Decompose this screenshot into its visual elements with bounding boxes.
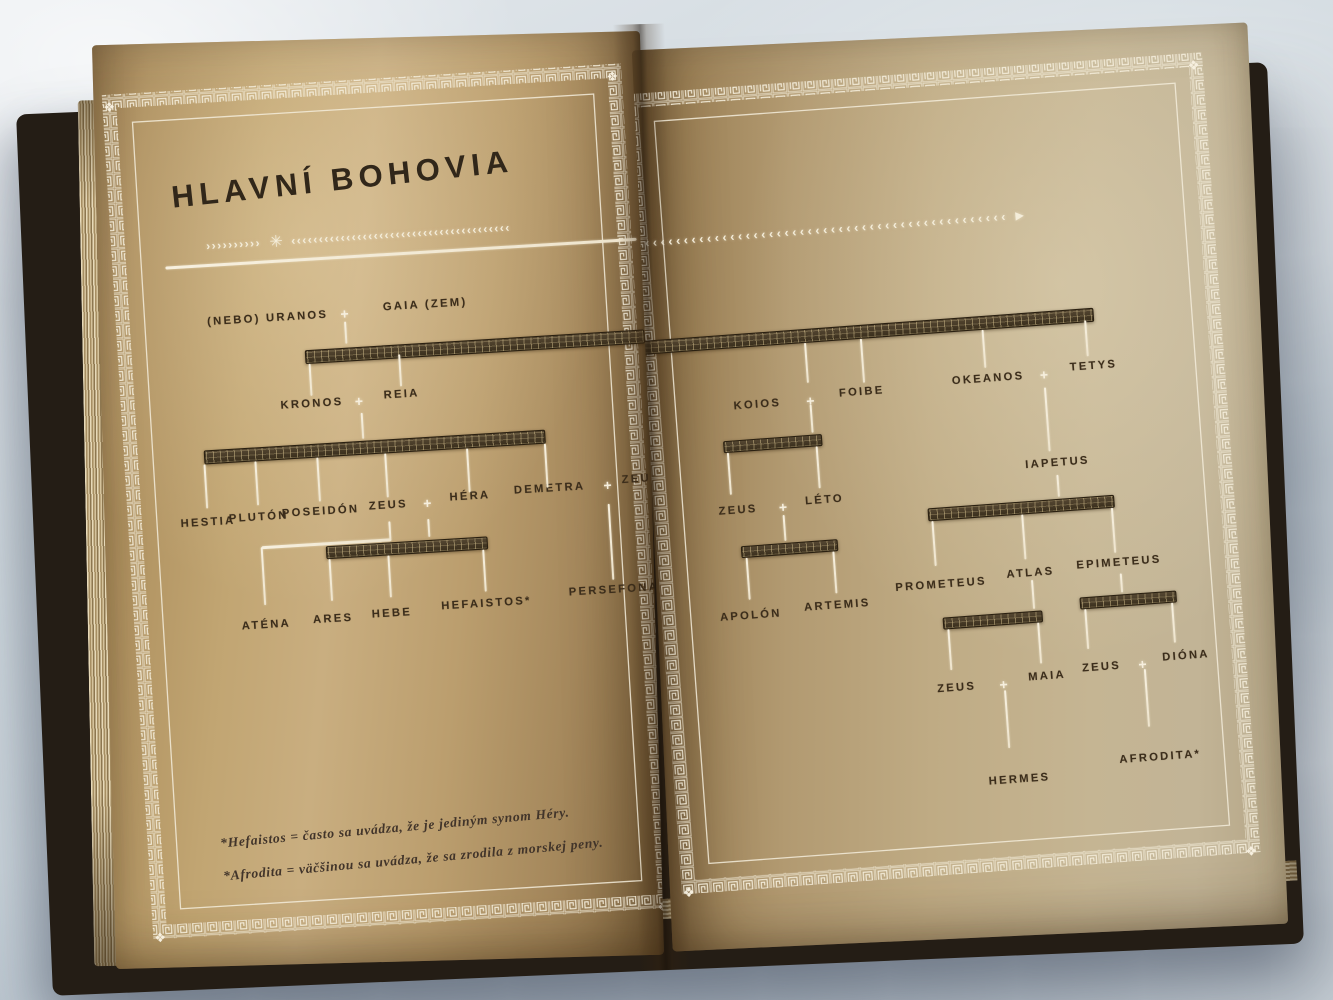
left-page: ❖ ❖ ❖ ❖ HLAVNÍ BOHOVIA ›››››››››› ✳ ‹‹‹‹… — [92, 31, 664, 969]
descent-bar — [634, 308, 1094, 356]
connector-line — [1037, 623, 1043, 664]
node-iapetus: IAPETUS — [1025, 454, 1090, 471]
descent-bar — [943, 610, 1044, 629]
connector-line — [1021, 514, 1027, 559]
node-zeus: ZEUS — [937, 680, 977, 695]
node-okeanos: OKEANOS — [951, 370, 1024, 387]
connector-line — [360, 413, 364, 439]
connector-line — [1004, 690, 1011, 748]
node-poseidon: POSEIDÓN — [282, 503, 360, 520]
descent-bar — [204, 430, 546, 465]
connector-line — [1056, 475, 1060, 497]
connector-line — [544, 444, 549, 488]
union-plus: + — [423, 495, 432, 511]
connector-line — [1144, 669, 1151, 727]
connector-line — [947, 629, 953, 670]
page-title: HLAVNÍ BOHOVIA — [170, 143, 515, 215]
connector-line — [809, 405, 814, 433]
node-persefona: PERSEFONA — [568, 581, 659, 598]
connector-line — [344, 322, 348, 344]
union-plus: + — [603, 477, 612, 493]
union-plus: + — [354, 393, 363, 409]
connector-line — [607, 504, 614, 580]
connector-line — [981, 330, 986, 368]
connector-line — [1084, 320, 1089, 356]
connector-line — [815, 446, 821, 488]
chevrons-right-icon: ›››››››››› — [206, 236, 262, 253]
node-hebe: HEBE — [371, 606, 412, 620]
connector-line — [388, 521, 392, 539]
connector-line — [1031, 580, 1036, 609]
node-reia: REIA — [383, 387, 420, 401]
footnotes: *Hefaistos = často sa uvádza, že je jedi… — [219, 787, 664, 893]
connector-line — [832, 551, 838, 593]
connector-line — [727, 453, 733, 495]
node-hefaistos: HEFAISTOS* — [441, 595, 532, 613]
chevrons-left-icon: ‹‹‹‹‹‹‹‹‹‹‹‹‹‹‹‹‹‹‹‹‹‹‹‹‹‹‹‹‹‹‹‹‹‹‹‹‹‹‹‹ — [291, 220, 511, 247]
connector-line — [260, 547, 266, 605]
node-prometeus: PROMETEUS — [895, 575, 987, 594]
node-zeus: ZEUS — [718, 503, 758, 518]
union-plus: + — [1039, 366, 1048, 383]
node-atena: ATÉNA — [242, 618, 292, 633]
connector-line — [466, 448, 471, 492]
connector-line — [1119, 573, 1123, 592]
photo-scene: ❖ ❖ ❖ ❖ HLAVNÍ BOHOVIA ›››››››››› ✳ ‹‹‹‹… — [0, 0, 1333, 1000]
flower-ornament-icon: ✳ — [265, 233, 287, 251]
node-hestia: HESTIA — [180, 515, 235, 530]
node-maia: MAIA — [1028, 669, 1067, 684]
connector-line — [398, 354, 403, 386]
descent-bar — [741, 539, 839, 558]
right-page: ❖ ❖ ❖ ‹‹‹‹‹‹‹‹‹‹‹‹‹‹‹‹‹‹‹‹‹‹‹‹‹‹‹‹‹‹‹‹‹‹… — [632, 22, 1288, 951]
connector-line — [482, 550, 487, 592]
node-leto: LÉTO — [805, 493, 845, 508]
descent-bar — [723, 434, 823, 453]
left-page-content: HLAVNÍ BOHOVIA ›››››››››› ✳ ‹‹‹‹‹‹‹‹‹‹‹‹… — [92, 31, 664, 969]
node-tetys: TETYS — [1069, 358, 1117, 373]
connector-line — [804, 343, 810, 383]
descent-bar — [1079, 590, 1177, 609]
connector-line — [1044, 387, 1051, 451]
node-hermes: HERMES — [988, 771, 1050, 787]
node-epimeteus: EPIMETEUS — [1076, 553, 1162, 571]
connector-line — [328, 559, 333, 601]
node-foibe: FOIBE — [839, 384, 885, 399]
chevrons-left-icon: ‹‹‹‹‹‹‹‹‹‹‹‹‹‹‹‹‹‹‹‹‹‹‹‹‹‹‹‹‹‹‹‹‹‹‹‹‹‹‹‹… — [637, 209, 1010, 250]
node-afrodita: AFRODITA* — [1119, 748, 1202, 766]
node-zeus: ZEUS — [368, 498, 408, 512]
connector-line — [203, 464, 208, 508]
connector-line — [1171, 603, 1177, 643]
descent-bar — [305, 329, 645, 364]
connector-line — [782, 515, 786, 541]
connector-line — [931, 521, 937, 566]
union-plus: + — [340, 305, 349, 321]
connector-line — [387, 555, 392, 597]
node-atlas: ATLAS — [1006, 565, 1055, 580]
node-uranos: (NEBO) URANOS — [207, 309, 329, 328]
connector-line — [254, 461, 259, 505]
node-koios: KOIOS — [733, 397, 781, 412]
divider-arrow: ‹‹‹‹‹‹‹‹‹‹‹‹‹‹‹‹‹‹‹‹‹‹‹‹‹‹‹‹‹‹‹‹‹‹‹‹‹‹‹‹… — [637, 207, 1025, 253]
union-plus: + — [778, 499, 787, 516]
connector-line — [860, 339, 866, 383]
node-pluton: PLUTÓN — [229, 509, 289, 525]
node-gaia: GAIA (ZEM) — [383, 296, 468, 313]
node-artemis: ARTEMIS — [804, 597, 871, 614]
connector-line — [1084, 609, 1090, 649]
node-zeus: ZEUS — [1082, 660, 1122, 675]
connector-line — [427, 519, 431, 537]
node-kronos: KRONOS — [280, 396, 344, 412]
connector-line — [308, 364, 313, 396]
connector-line — [745, 558, 751, 600]
node-demetra: DEMETRA — [514, 480, 586, 496]
node-diona: DIÓNA — [1162, 648, 1210, 663]
connector-line — [1111, 508, 1117, 553]
node-ares: ARES — [313, 612, 354, 626]
connector-line — [316, 458, 321, 502]
connector-line — [384, 453, 389, 497]
arrowhead-icon: ▶ — [1013, 210, 1024, 223]
node-apolon: APOLÓN — [720, 607, 782, 623]
right-page-content: ‹‹‹‹‹‹‹‹‹‹‹‹‹‹‹‹‹‹‹‹‹‹‹‹‹‹‹‹‹‹‹‹‹‹‹‹‹‹‹‹… — [632, 22, 1288, 951]
